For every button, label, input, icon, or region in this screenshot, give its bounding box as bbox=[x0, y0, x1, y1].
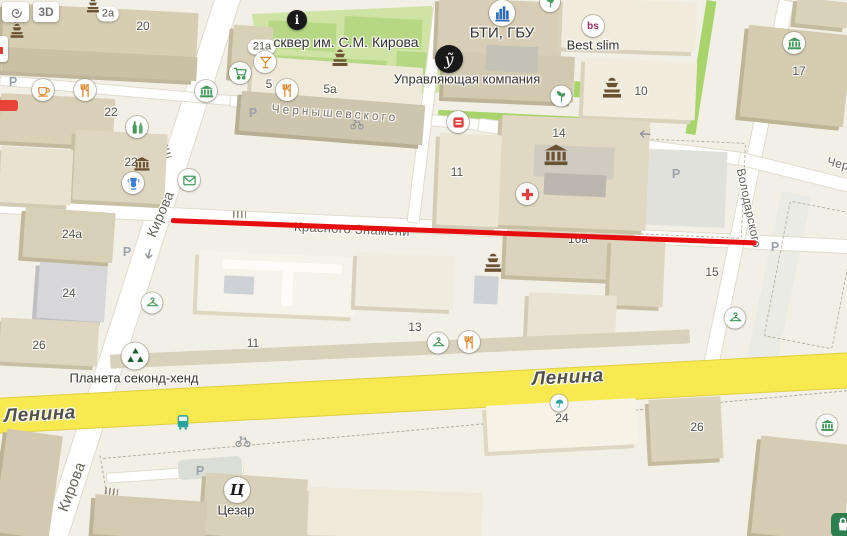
building bbox=[609, 239, 666, 307]
house-number: 13 bbox=[408, 320, 421, 334]
cezar-logo-icon-glyph: Ц bbox=[230, 481, 245, 499]
clothes-hanger-icon bbox=[431, 336, 445, 350]
oneway-arrow-icon bbox=[638, 127, 653, 142]
house-number: 26 bbox=[690, 420, 703, 434]
building bbox=[795, 0, 847, 29]
secondhand-recycle-icon bbox=[125, 346, 145, 366]
building-wing bbox=[224, 275, 255, 294]
oneway-arrow-icon[interactable] bbox=[141, 246, 158, 263]
cezar-logo-icon[interactable]: Ц bbox=[224, 477, 250, 503]
building-courtyard bbox=[485, 45, 538, 73]
oneway-arrow-icon bbox=[141, 246, 158, 263]
eco-leaf-icon bbox=[554, 89, 568, 103]
post-icon[interactable] bbox=[178, 169, 200, 191]
museum-icon bbox=[787, 36, 802, 51]
bar-icon bbox=[258, 55, 273, 70]
house-number: 10 bbox=[634, 84, 647, 98]
cafe-icon[interactable] bbox=[32, 79, 54, 101]
restaurant-icon[interactable] bbox=[458, 331, 480, 353]
supermarket-icon bbox=[233, 66, 248, 81]
fountain-icon[interactable] bbox=[482, 252, 504, 274]
layers-spiral-icon bbox=[9, 5, 23, 19]
building bbox=[355, 252, 455, 310]
museum-vase-icon bbox=[126, 176, 141, 191]
company-logo-icon-glyph: ỹ bbox=[444, 50, 453, 69]
house-number: 5 bbox=[266, 77, 273, 91]
partial-ui-chip bbox=[0, 47, 3, 54]
parking-letter: Р bbox=[249, 106, 257, 120]
building bbox=[72, 130, 168, 205]
post-icon bbox=[182, 173, 197, 188]
shop-kiosk-icon bbox=[451, 115, 466, 130]
building-wing bbox=[544, 173, 607, 198]
museum-icon bbox=[134, 156, 151, 173]
house-number: 5a bbox=[323, 82, 336, 96]
place-label[interactable]: БТИ, ГБУ bbox=[470, 25, 535, 42]
parking-letter: Р bbox=[771, 240, 779, 254]
building bbox=[93, 494, 208, 536]
building bbox=[197, 251, 357, 318]
bti-logo-icon[interactable] bbox=[489, 0, 515, 26]
house-number: 17 bbox=[792, 64, 805, 78]
clothes-hanger-icon[interactable] bbox=[142, 293, 163, 314]
museum-icon[interactable] bbox=[195, 80, 217, 102]
crosswalk-marks bbox=[233, 211, 246, 219]
block-edge-wall bbox=[110, 329, 690, 368]
house-number: 26 bbox=[32, 338, 45, 352]
place-label[interactable]: Планета секонд-хенд bbox=[69, 371, 198, 386]
house-number: 11 bbox=[451, 165, 463, 179]
info-icon[interactable]: i bbox=[287, 10, 307, 30]
map-canvas[interactable]: КироваКироваКрасного ЗнамениЛенинаЛенина… bbox=[0, 0, 847, 536]
museum-icon[interactable] bbox=[543, 142, 569, 168]
place-label[interactable]: Best slim bbox=[567, 38, 620, 53]
museum-icon bbox=[199, 84, 214, 99]
parking-letter: Р bbox=[196, 464, 204, 478]
info-icon-glyph: i bbox=[295, 13, 300, 27]
fountain-icon bbox=[85, 0, 101, 14]
house-number: 11 bbox=[247, 336, 259, 350]
clothes-hanger-icon[interactable] bbox=[428, 333, 449, 354]
bus-stop-icon bbox=[175, 414, 192, 431]
place-label[interactable]: Цезар bbox=[218, 503, 255, 518]
restaurant-icon bbox=[280, 83, 295, 98]
bti-logo-icon bbox=[493, 4, 512, 23]
fountain-icon[interactable] bbox=[85, 0, 101, 14]
house-number: 24 bbox=[62, 286, 75, 300]
fountain-icon[interactable] bbox=[600, 76, 624, 100]
shop-partial-icon bbox=[831, 513, 847, 536]
street-label: Ленина bbox=[4, 402, 77, 428]
umbrella-icon[interactable] bbox=[551, 395, 568, 412]
supermarket-icon[interactable] bbox=[229, 62, 251, 84]
fountain-icon[interactable] bbox=[9, 23, 26, 40]
pharmacy-cross-icon[interactable] bbox=[516, 183, 538, 205]
museum-icon[interactable] bbox=[134, 156, 151, 173]
parking-letter: Р bbox=[9, 75, 17, 89]
bike-path-icon bbox=[235, 433, 251, 449]
place-label[interactable]: Управляющая компания bbox=[394, 72, 541, 87]
bike-path-icon[interactable] bbox=[350, 117, 364, 131]
cafe-icon bbox=[36, 83, 51, 98]
company-logo-icon[interactable]: ỹ bbox=[435, 45, 463, 73]
partial-ui-chip bbox=[0, 100, 18, 111]
eco-leaf-icon[interactable] bbox=[551, 86, 572, 107]
museum-icon bbox=[820, 418, 834, 432]
street-label: Ленина bbox=[532, 365, 605, 391]
parking-letter: Р bbox=[123, 245, 131, 259]
building bbox=[0, 146, 73, 206]
restaurant-icon bbox=[462, 335, 477, 350]
fountain-icon bbox=[330, 48, 350, 68]
pharmacy-icon[interactable] bbox=[126, 116, 148, 138]
layers-button[interactable] bbox=[2, 2, 29, 22]
oneway-arrow-icon[interactable] bbox=[638, 127, 653, 142]
museum-icon bbox=[543, 142, 569, 168]
fountain-icon[interactable] bbox=[330, 48, 350, 68]
building-courtyard bbox=[281, 262, 294, 306]
house-number: 15 bbox=[705, 265, 718, 279]
museum-icon[interactable] bbox=[783, 32, 805, 54]
restaurant-icon[interactable] bbox=[74, 79, 96, 101]
house-number: 24 bbox=[555, 411, 568, 425]
fountain-icon bbox=[9, 23, 26, 40]
building bbox=[436, 133, 502, 228]
building-wing bbox=[473, 275, 498, 304]
parking-letter: Р bbox=[672, 167, 680, 181]
building bbox=[307, 487, 483, 536]
bus-stop-icon[interactable] bbox=[175, 414, 192, 431]
restaurant-icon[interactable] bbox=[276, 79, 298, 101]
eco-leaf-icon bbox=[544, 0, 557, 9]
clothes-hanger-icon bbox=[728, 311, 742, 325]
clothes-hanger-icon bbox=[145, 296, 159, 310]
fountain-icon bbox=[482, 252, 504, 274]
secondhand-recycle-icon[interactable] bbox=[122, 343, 149, 370]
museum-vase-icon[interactable] bbox=[122, 172, 144, 194]
best-slim-logo-icon-glyph: bs bbox=[587, 21, 599, 32]
clothes-hanger-icon[interactable] bbox=[725, 308, 746, 329]
pharmacy-cross-icon bbox=[520, 187, 535, 202]
fountain-icon bbox=[600, 76, 624, 100]
tilt-3d-label: 3D bbox=[38, 5, 53, 19]
house-number: 22 bbox=[104, 105, 117, 119]
umbrella-icon bbox=[554, 398, 564, 408]
house-number: 24a bbox=[62, 227, 82, 241]
restaurant-icon bbox=[78, 83, 93, 98]
shop-kiosk-icon[interactable] bbox=[447, 111, 469, 133]
bike-path-icon bbox=[350, 117, 364, 131]
shop-partial-icon[interactable] bbox=[831, 513, 847, 536]
bar-icon[interactable] bbox=[254, 51, 276, 73]
pharmacy-icon bbox=[130, 120, 145, 135]
tilt-3d-button[interactable]: 3D bbox=[33, 2, 59, 22]
bike-path-icon[interactable] bbox=[235, 433, 251, 449]
house-number: 20 bbox=[136, 19, 149, 33]
building bbox=[0, 317, 99, 366]
best-slim-logo-icon[interactable]: bs bbox=[582, 15, 604, 37]
museum-icon[interactable] bbox=[817, 415, 838, 436]
building bbox=[648, 396, 723, 462]
house-number: 14 bbox=[552, 126, 565, 140]
